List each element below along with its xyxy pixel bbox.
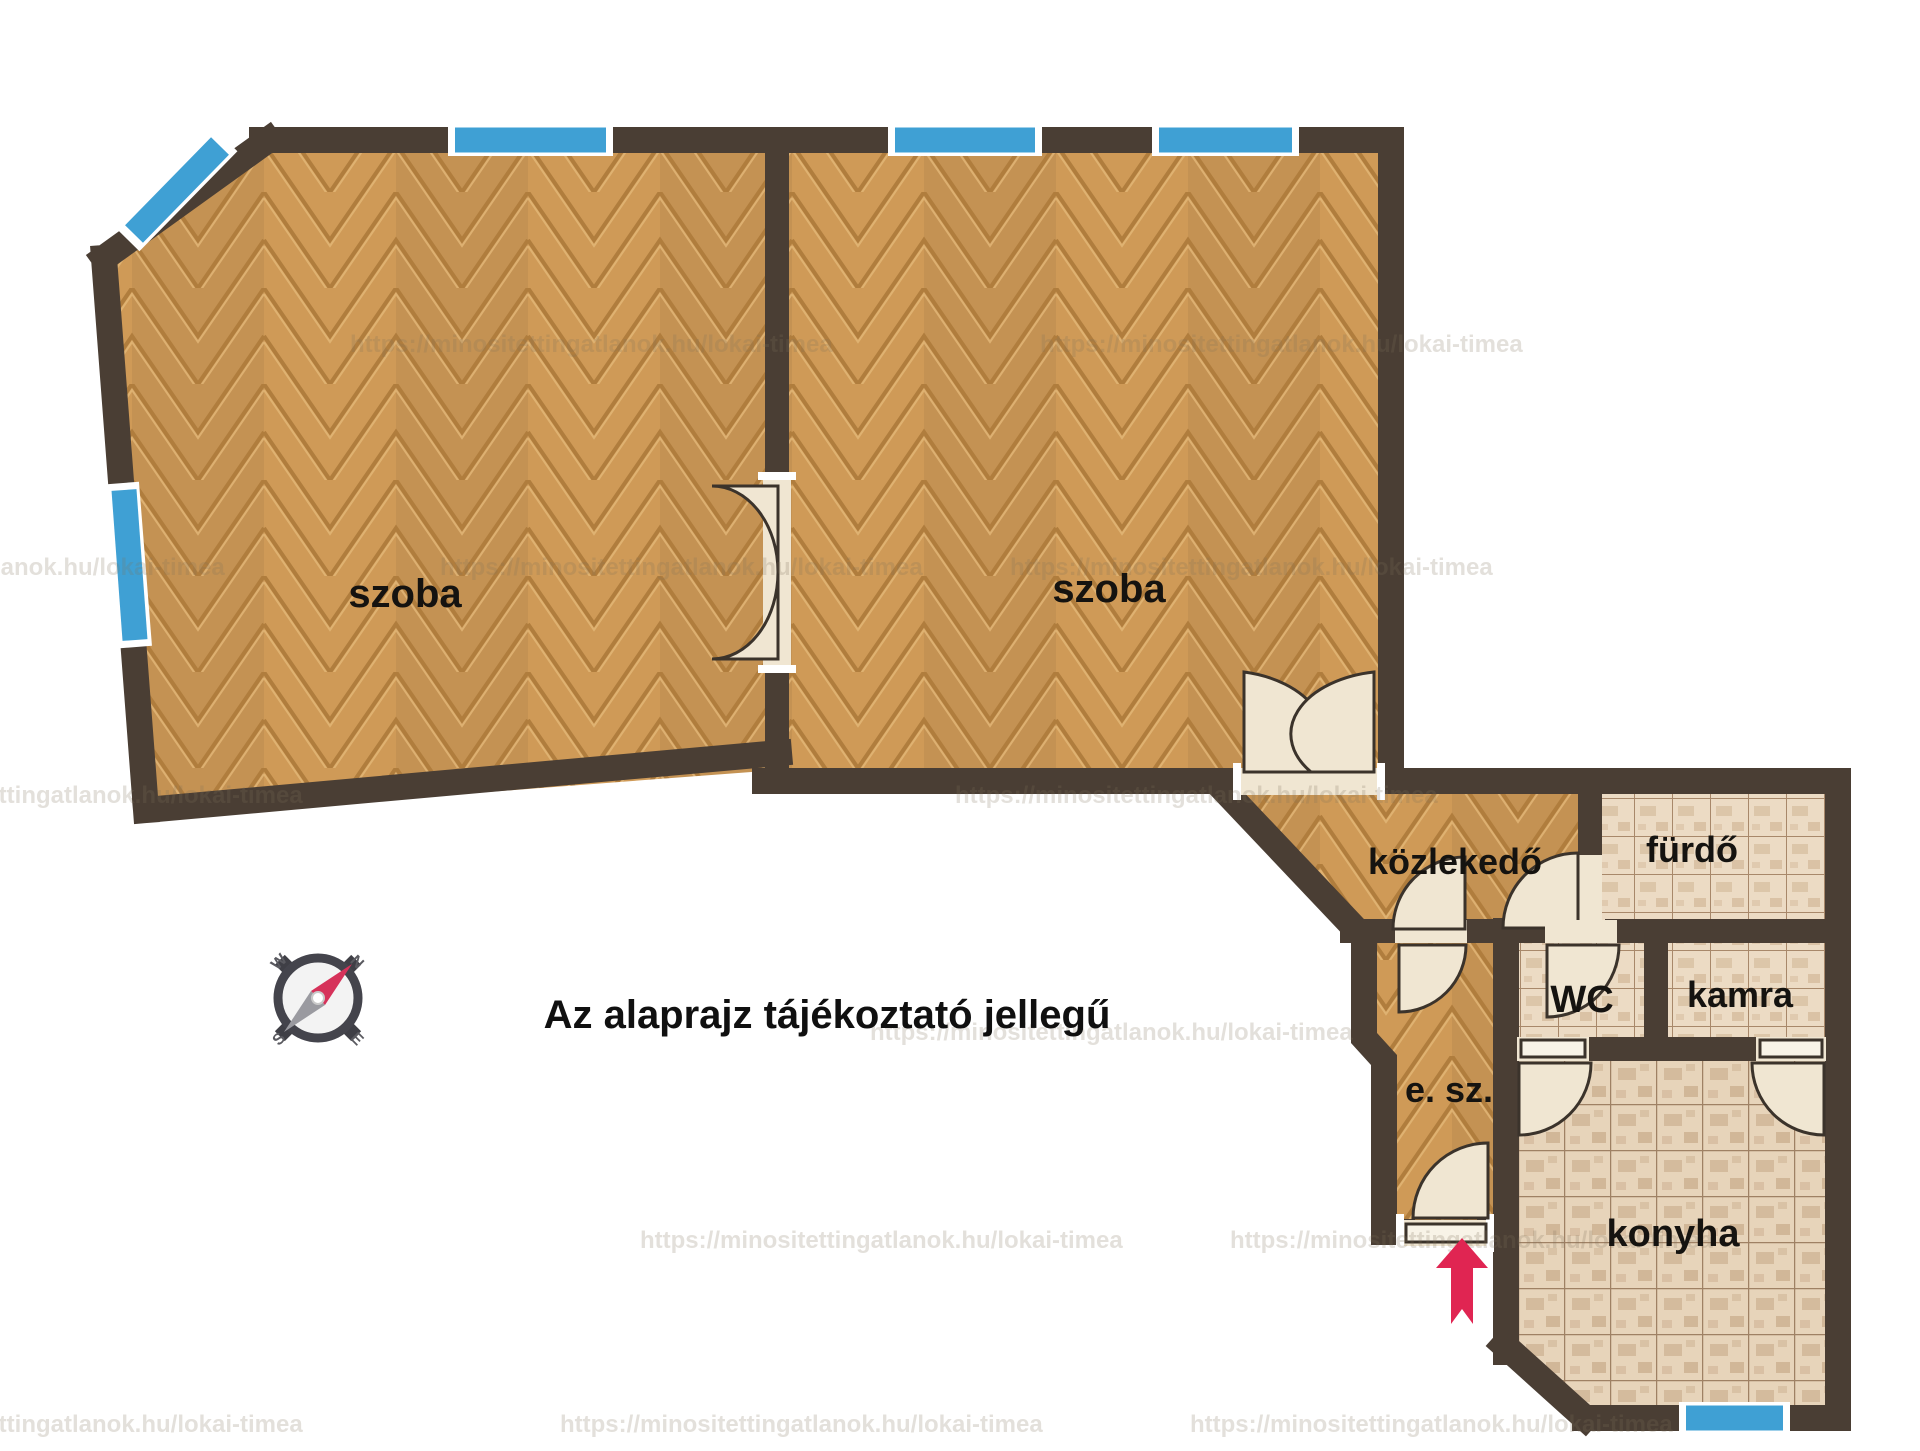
watermark-text: https://minositettingatlanok.hu/lokai-ti… [640,1227,1123,1254]
compass-rose-icon: W N S E [268,950,367,1049]
room-label-konyha: konyha [1606,1213,1740,1255]
room-label-esz: e. sz. [1405,1069,1493,1110]
room-label-szoba-1: szoba [348,572,462,616]
watermark-text: https://minositettingatlanok.hu/lokai-ti… [0,554,225,581]
watermark-text: https://minositettingatlanok.hu/lokai-ti… [955,782,1438,809]
room-floor-szoba-1 [108,139,777,818]
room-label-kamra: kamra [1687,974,1794,1015]
compass-hub [312,992,324,1004]
watermark-text: https://minositettingatlanok.hu/lokai-ti… [0,1411,303,1438]
watermark-text: https://minositettingatlanok.hu/lokai-ti… [350,331,833,358]
disclaimer-text: Az alaprajz tájékoztató jellegű [544,993,1111,1037]
watermark-text: https://minositettingatlanok.hu/lokai-ti… [560,1411,1043,1438]
watermark-text: https://minositettingatlanok.hu/lokai-ti… [1040,331,1523,358]
floor-plan-canvas: https://minositettingatlanok.hu/lokai-ti… [0,0,1920,1451]
room-floor-szoba-2 [777,139,1391,784]
room-label-kozlekedo: közlekedő [1368,841,1542,882]
room-label-szoba-2: szoba [1052,567,1166,611]
watermark-text: https://minositettingatlanok.hu/lokai-ti… [1190,1411,1673,1438]
watermark-text: https://minositettingatlanok.hu/lokai-ti… [0,782,303,809]
floor-plan-page: https://minositettingatlanok.hu/lokai-ti… [0,0,1920,1451]
room-label-wc: WC [1550,979,1613,1021]
watermark-text: https://minositettingatlanok.hu/lokai-ti… [440,554,923,581]
room-label-furdo: fürdő [1646,829,1738,870]
